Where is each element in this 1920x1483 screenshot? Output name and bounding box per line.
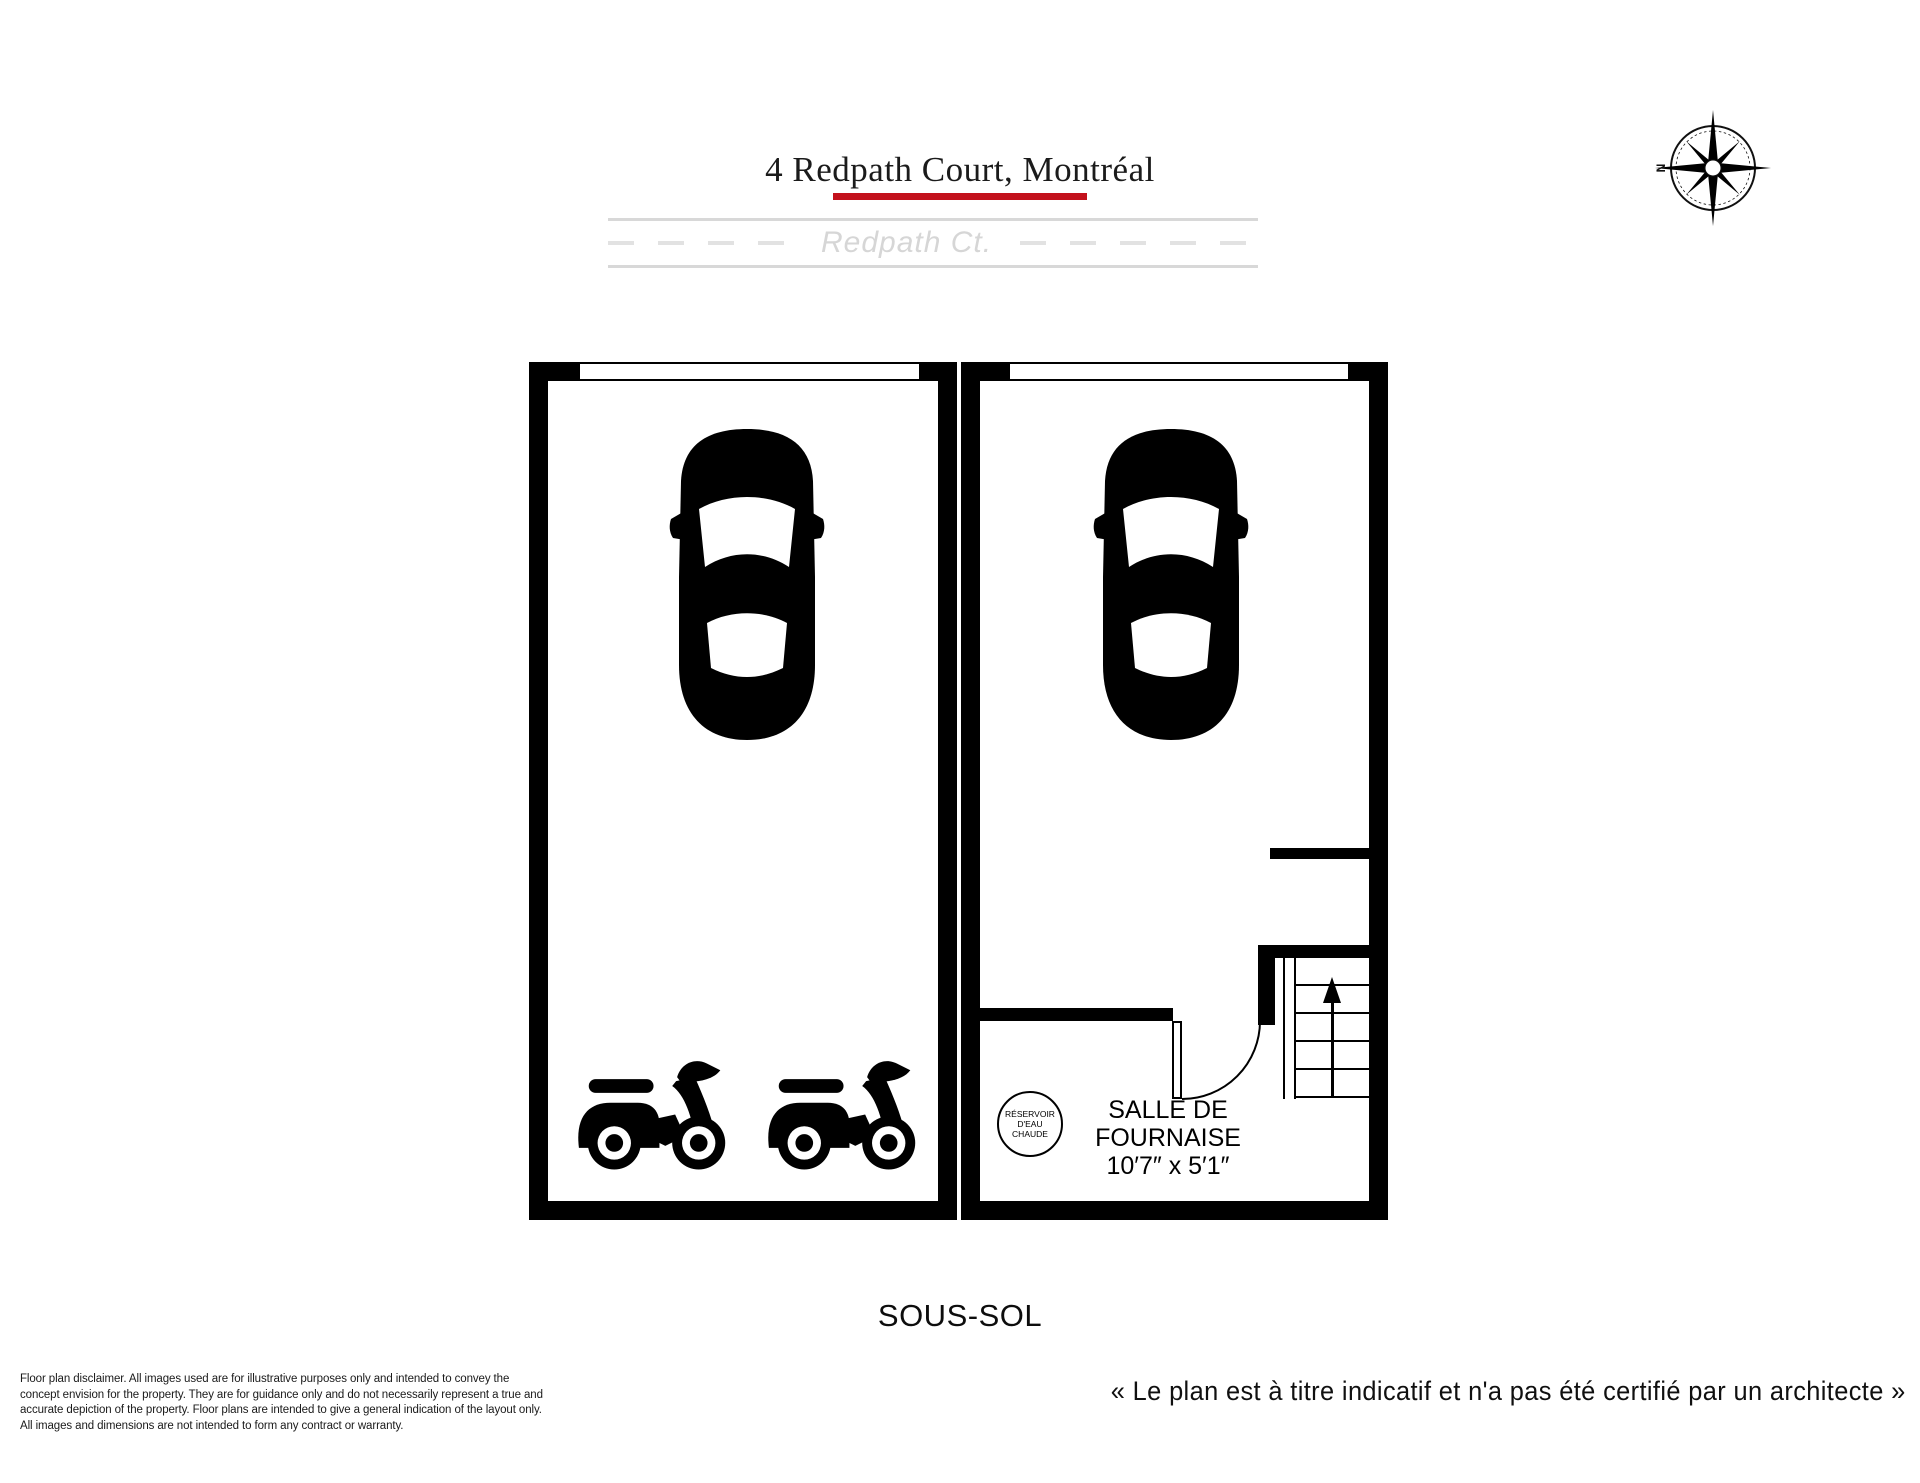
disclaimer-text: Floor plan disclaimer. All images used a… xyxy=(20,1372,543,1435)
stairs-up-arrow-icon xyxy=(1331,1002,1334,1096)
north-label: N xyxy=(1654,164,1668,173)
water-heater-circle: RÉSERVOIR D'EAU CHAUDE xyxy=(997,1091,1063,1157)
page-title: 4 Redpath Court, Montréal xyxy=(0,150,1920,190)
water-heater-label: RÉSERVOIR D'EAU CHAUDE xyxy=(999,1109,1061,1139)
compass-rose-icon: N xyxy=(1646,101,1780,235)
title-underline xyxy=(833,193,1087,200)
car-top-view-icon xyxy=(667,427,827,742)
floor-label: SOUS-SOL xyxy=(0,1298,1920,1334)
scooter-icon xyxy=(765,1055,927,1172)
floor-plan-page: 4 Redpath Court, Montréal Redpath Ct. N xyxy=(0,0,1920,1483)
furnace-room-wall xyxy=(980,1008,1173,1021)
stair-rail xyxy=(1283,958,1296,1099)
wall-stub xyxy=(1258,945,1275,1025)
stairs-up-arrow-head xyxy=(1323,977,1341,1003)
stair-tread xyxy=(1296,1096,1369,1098)
furnace-room-label: SALLE DE FOURNAISE xyxy=(1058,1096,1278,1152)
certification-note: « Le plan est à titre indicatif et n'a p… xyxy=(1111,1376,1906,1407)
scooter-icon xyxy=(575,1055,737,1172)
car-top-view-icon xyxy=(1091,427,1251,742)
furnace-room-dimensions: 10′7″ x 5′1″ xyxy=(1058,1152,1278,1181)
garage-door-opening-right xyxy=(1010,362,1348,381)
street-label: Redpath Ct. xyxy=(793,226,1020,260)
road-center-dash-line xyxy=(608,241,793,245)
road-center-dash-line xyxy=(1020,241,1258,245)
street-road: Redpath Ct. xyxy=(608,218,1258,268)
wall-stub xyxy=(1270,848,1369,859)
garage-door-opening-left xyxy=(580,362,919,381)
